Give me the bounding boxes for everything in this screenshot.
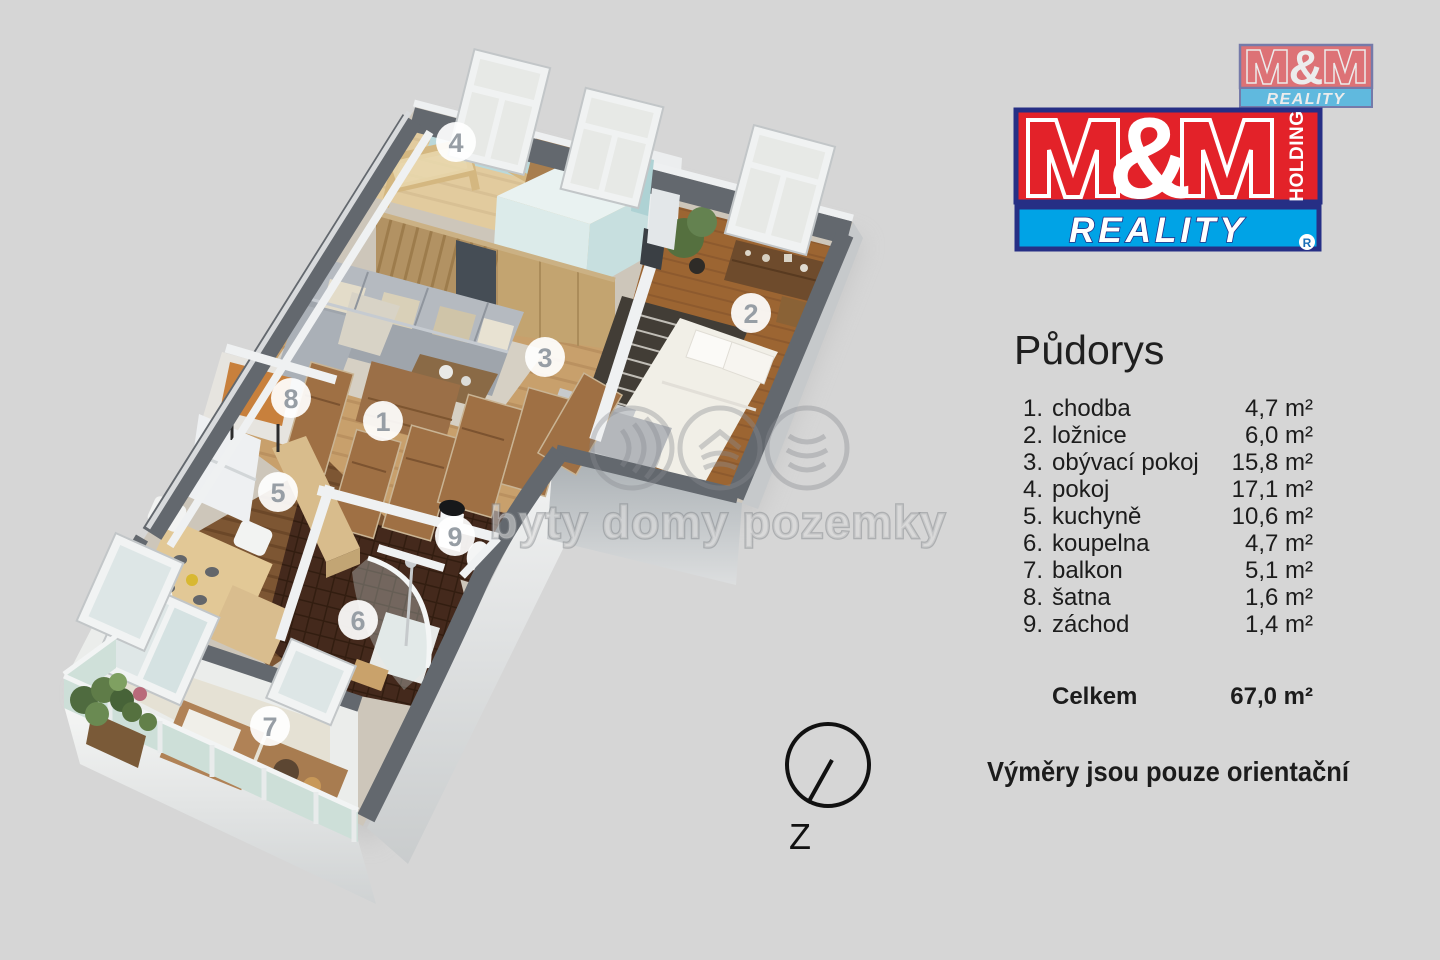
svg-text:byty domy pozemky: byty domy pozemky bbox=[490, 496, 947, 548]
svg-text:HOLDING: HOLDING bbox=[1287, 110, 1308, 201]
svg-text:6: 6 bbox=[350, 606, 365, 636]
svg-text:4.: 4. bbox=[1023, 476, 1043, 503]
svg-text:1: 1 bbox=[375, 407, 390, 437]
svg-text:8: 8 bbox=[283, 384, 298, 414]
svg-text:1,6 m²: 1,6 m² bbox=[1245, 584, 1313, 611]
svg-text:8.: 8. bbox=[1023, 584, 1043, 611]
svg-text:4,7 m²: 4,7 m² bbox=[1245, 395, 1313, 422]
svg-text:4,7 m²: 4,7 m² bbox=[1245, 530, 1313, 557]
svg-text:10,6 m²: 10,6 m² bbox=[1232, 503, 1313, 530]
svg-text:17,1 m²: 17,1 m² bbox=[1232, 476, 1313, 503]
svg-text:obývací pokoj: obývací pokoj bbox=[1052, 449, 1199, 476]
svg-text:2.: 2. bbox=[1023, 422, 1043, 449]
svg-text:&: & bbox=[1108, 93, 1192, 223]
svg-text:Z: Z bbox=[789, 816, 811, 857]
svg-text:5.: 5. bbox=[1023, 503, 1043, 530]
svg-text:Výměry jsou pouze orientační: Výměry jsou pouze orientační bbox=[987, 756, 1350, 787]
svg-text:6,0 m²: 6,0 m² bbox=[1245, 422, 1313, 449]
svg-text:ložnice: ložnice bbox=[1052, 422, 1127, 449]
svg-text:chodba: chodba bbox=[1052, 395, 1131, 422]
svg-text:7.: 7. bbox=[1023, 557, 1043, 584]
svg-text:šatna: šatna bbox=[1052, 584, 1111, 611]
svg-text:pokoj: pokoj bbox=[1052, 476, 1109, 503]
svg-text:3.: 3. bbox=[1023, 449, 1043, 476]
svg-text:1,4 m²: 1,4 m² bbox=[1245, 611, 1313, 638]
svg-text:15,8 m²: 15,8 m² bbox=[1232, 449, 1313, 476]
svg-text:5,1 m²: 5,1 m² bbox=[1245, 557, 1313, 584]
svg-text:4: 4 bbox=[448, 128, 463, 158]
svg-text:koupelna: koupelna bbox=[1052, 530, 1150, 557]
svg-text:9: 9 bbox=[447, 522, 462, 552]
svg-text:Půdorys: Půdorys bbox=[1014, 327, 1164, 373]
svg-text:67,0 m²: 67,0 m² bbox=[1230, 683, 1313, 710]
svg-text:3: 3 bbox=[537, 343, 552, 373]
svg-text:1.: 1. bbox=[1023, 395, 1043, 422]
svg-text:9.: 9. bbox=[1023, 611, 1043, 638]
svg-text:7: 7 bbox=[262, 712, 277, 742]
svg-text:REALITY: REALITY bbox=[1069, 211, 1247, 250]
svg-text:záchod: záchod bbox=[1052, 611, 1129, 638]
svg-text:kuchyně: kuchyně bbox=[1052, 503, 1141, 530]
svg-text:2: 2 bbox=[743, 299, 758, 329]
svg-text:balkon: balkon bbox=[1052, 557, 1123, 584]
svg-text:5: 5 bbox=[270, 478, 285, 508]
svg-text:R: R bbox=[1303, 236, 1312, 250]
svg-text:6.: 6. bbox=[1023, 530, 1043, 557]
svg-text:REALITY: REALITY bbox=[1267, 91, 1346, 108]
svg-text:Celkem: Celkem bbox=[1052, 683, 1137, 710]
svg-text:&: & bbox=[1289, 42, 1324, 95]
